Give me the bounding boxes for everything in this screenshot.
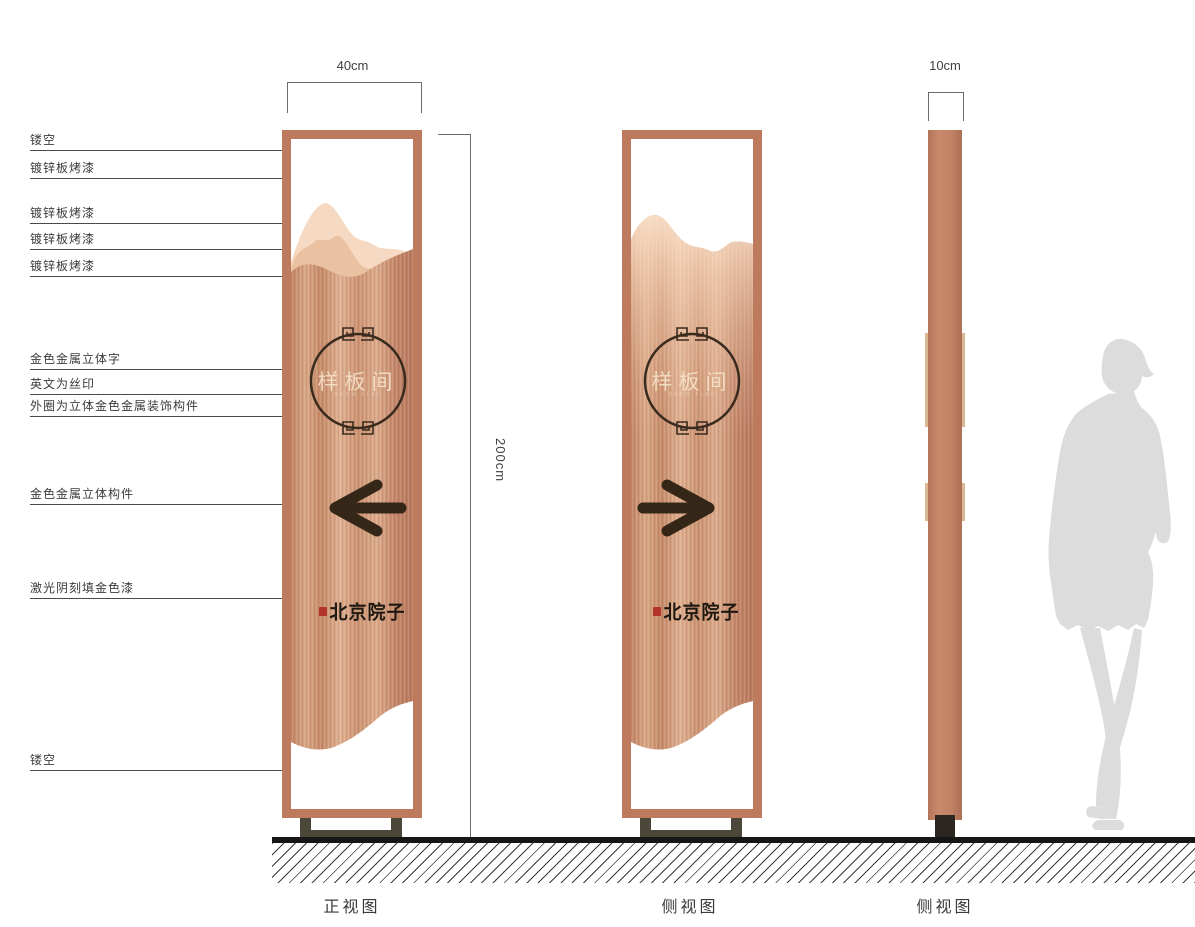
callout-label: 激光阴刻填金色漆 [30, 581, 315, 599]
circle-subtext-en: SHOW FLAT [312, 392, 404, 398]
logo-text: 北京院子 [330, 597, 406, 624]
callout-label: 外圈为立体金色金属装饰构件 [30, 399, 318, 417]
dimension-tick [438, 134, 470, 135]
view-caption: 侧视图 [630, 893, 750, 917]
brand-logo: 北京院子 [306, 598, 418, 624]
view-caption: 侧视图 [885, 893, 1005, 917]
dimension-line [470, 134, 471, 837]
copper-board [631, 215, 753, 749]
mountain-graphic [631, 215, 753, 749]
callout-text: 镂空 [30, 133, 56, 147]
callout-label: 镀锌板烤漆 [30, 232, 293, 250]
dimension-10cm: 10cm [915, 58, 975, 73]
callout-text: 镀锌板烤漆 [30, 232, 95, 246]
brand-logo: 北京院子 [640, 598, 752, 624]
callout-label: 镂空 [30, 753, 306, 771]
circle-subtext-en: SHOW FLAT [646, 392, 738, 398]
callout-text: 金色金属立体字 [30, 352, 121, 366]
callout-label: 镀锌板烤漆 [30, 161, 285, 179]
callout-text: 激光阴刻填金色漆 [30, 581, 134, 595]
callout-label: 镀锌板烤漆 [30, 259, 292, 277]
ground-hatch [272, 837, 1195, 883]
profile-base [935, 815, 955, 837]
dimension-bracket [928, 92, 964, 121]
dimension-40cm: 40cm [285, 58, 420, 73]
dimension-bracket [287, 82, 422, 113]
callout-label: 镂空 [30, 133, 306, 151]
seal-icon [653, 607, 661, 616]
callout-text: 镀锌板烤漆 [30, 259, 95, 273]
callout-text: 英文为丝印 [30, 377, 95, 391]
logo-text: 北京院子 [664, 597, 740, 624]
callout-text: 金色金属立体构件 [30, 487, 134, 501]
side-view-panel [622, 130, 762, 818]
signage-technical-drawing: 镂空 镀锌板烤漆 镀锌板烤漆 镀锌板烤漆 镀锌板烤漆 金色金属立体字 英文为丝印… [0, 0, 1195, 927]
seal-icon [319, 607, 327, 616]
callout-label: 镀锌板烤漆 [30, 206, 323, 224]
view-caption: 正视图 [292, 893, 412, 917]
person-silhouette [1042, 336, 1178, 838]
callout-text: 镀锌板烤漆 [30, 161, 95, 175]
dimension-200cm: 200cm [493, 438, 508, 482]
callout-text: 镀锌板烤漆 [30, 206, 95, 220]
callout-text: 镂空 [30, 753, 56, 767]
front-view-panel [282, 130, 422, 818]
callout-text: 外圈为立体金色金属装饰构件 [30, 399, 199, 413]
profile-view-panel [928, 130, 962, 820]
